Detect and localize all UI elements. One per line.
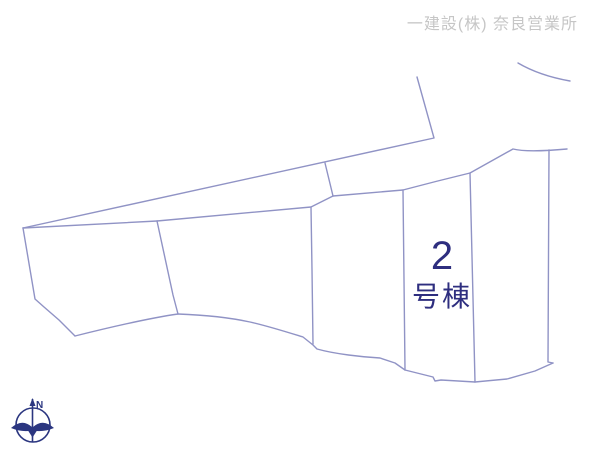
compass-north-label: N — [36, 400, 43, 411]
compass-keel-icon — [28, 431, 37, 438]
lower-boundary-east — [178, 314, 405, 370]
compass-north-icon: N — [8, 394, 60, 446]
compass-right-wing-icon — [33, 423, 54, 431]
site-plan-canvas: 一建設(株) 奈良営業所 2 号棟 — [0, 0, 600, 450]
lot-right-bottom-edge — [475, 363, 553, 382]
plot-2-shape[interactable] — [403, 173, 475, 382]
lower-boundary-west — [75, 314, 178, 336]
road-upper-boundary — [23, 77, 434, 228]
lot-right-top-edge — [470, 149, 567, 173]
lot-1-top-edge — [333, 190, 403, 196]
lot-divider-2 — [311, 207, 313, 344]
road-lower-boundary — [157, 196, 333, 221]
lot-divider-1 — [157, 221, 178, 314]
lot-left-west-edge — [23, 228, 75, 336]
compass-left-wing-icon — [11, 423, 32, 431]
lot-right-east-edge — [548, 150, 553, 363]
top-right-curve — [518, 63, 570, 81]
road-end-divider — [325, 163, 333, 196]
compass-arrowhead-icon — [30, 398, 36, 406]
lot-left-top-edge — [23, 221, 157, 228]
lot-map-drawing — [0, 0, 600, 450]
